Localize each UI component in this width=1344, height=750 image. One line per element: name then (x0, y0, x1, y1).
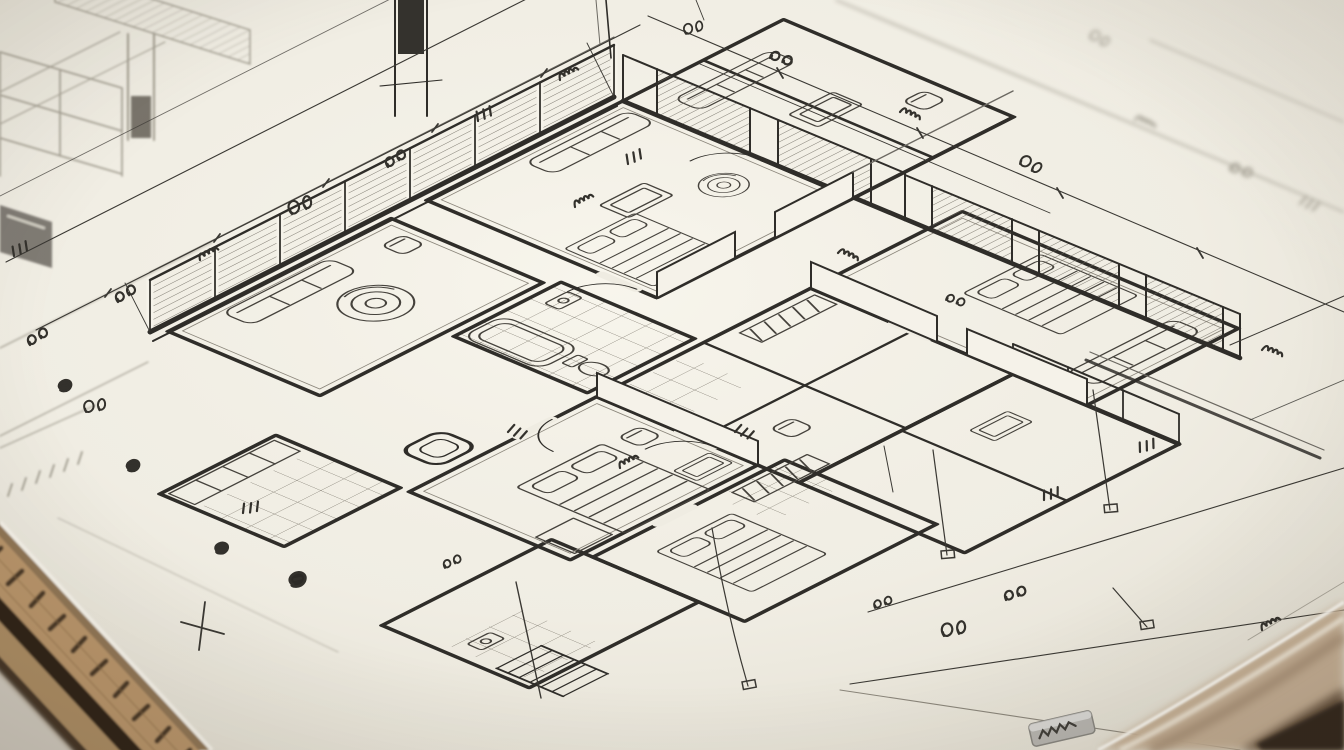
blueprint-canvas (0, 0, 1344, 750)
photo-of-blueprint (0, 0, 1344, 750)
vignette (0, 0, 1344, 750)
